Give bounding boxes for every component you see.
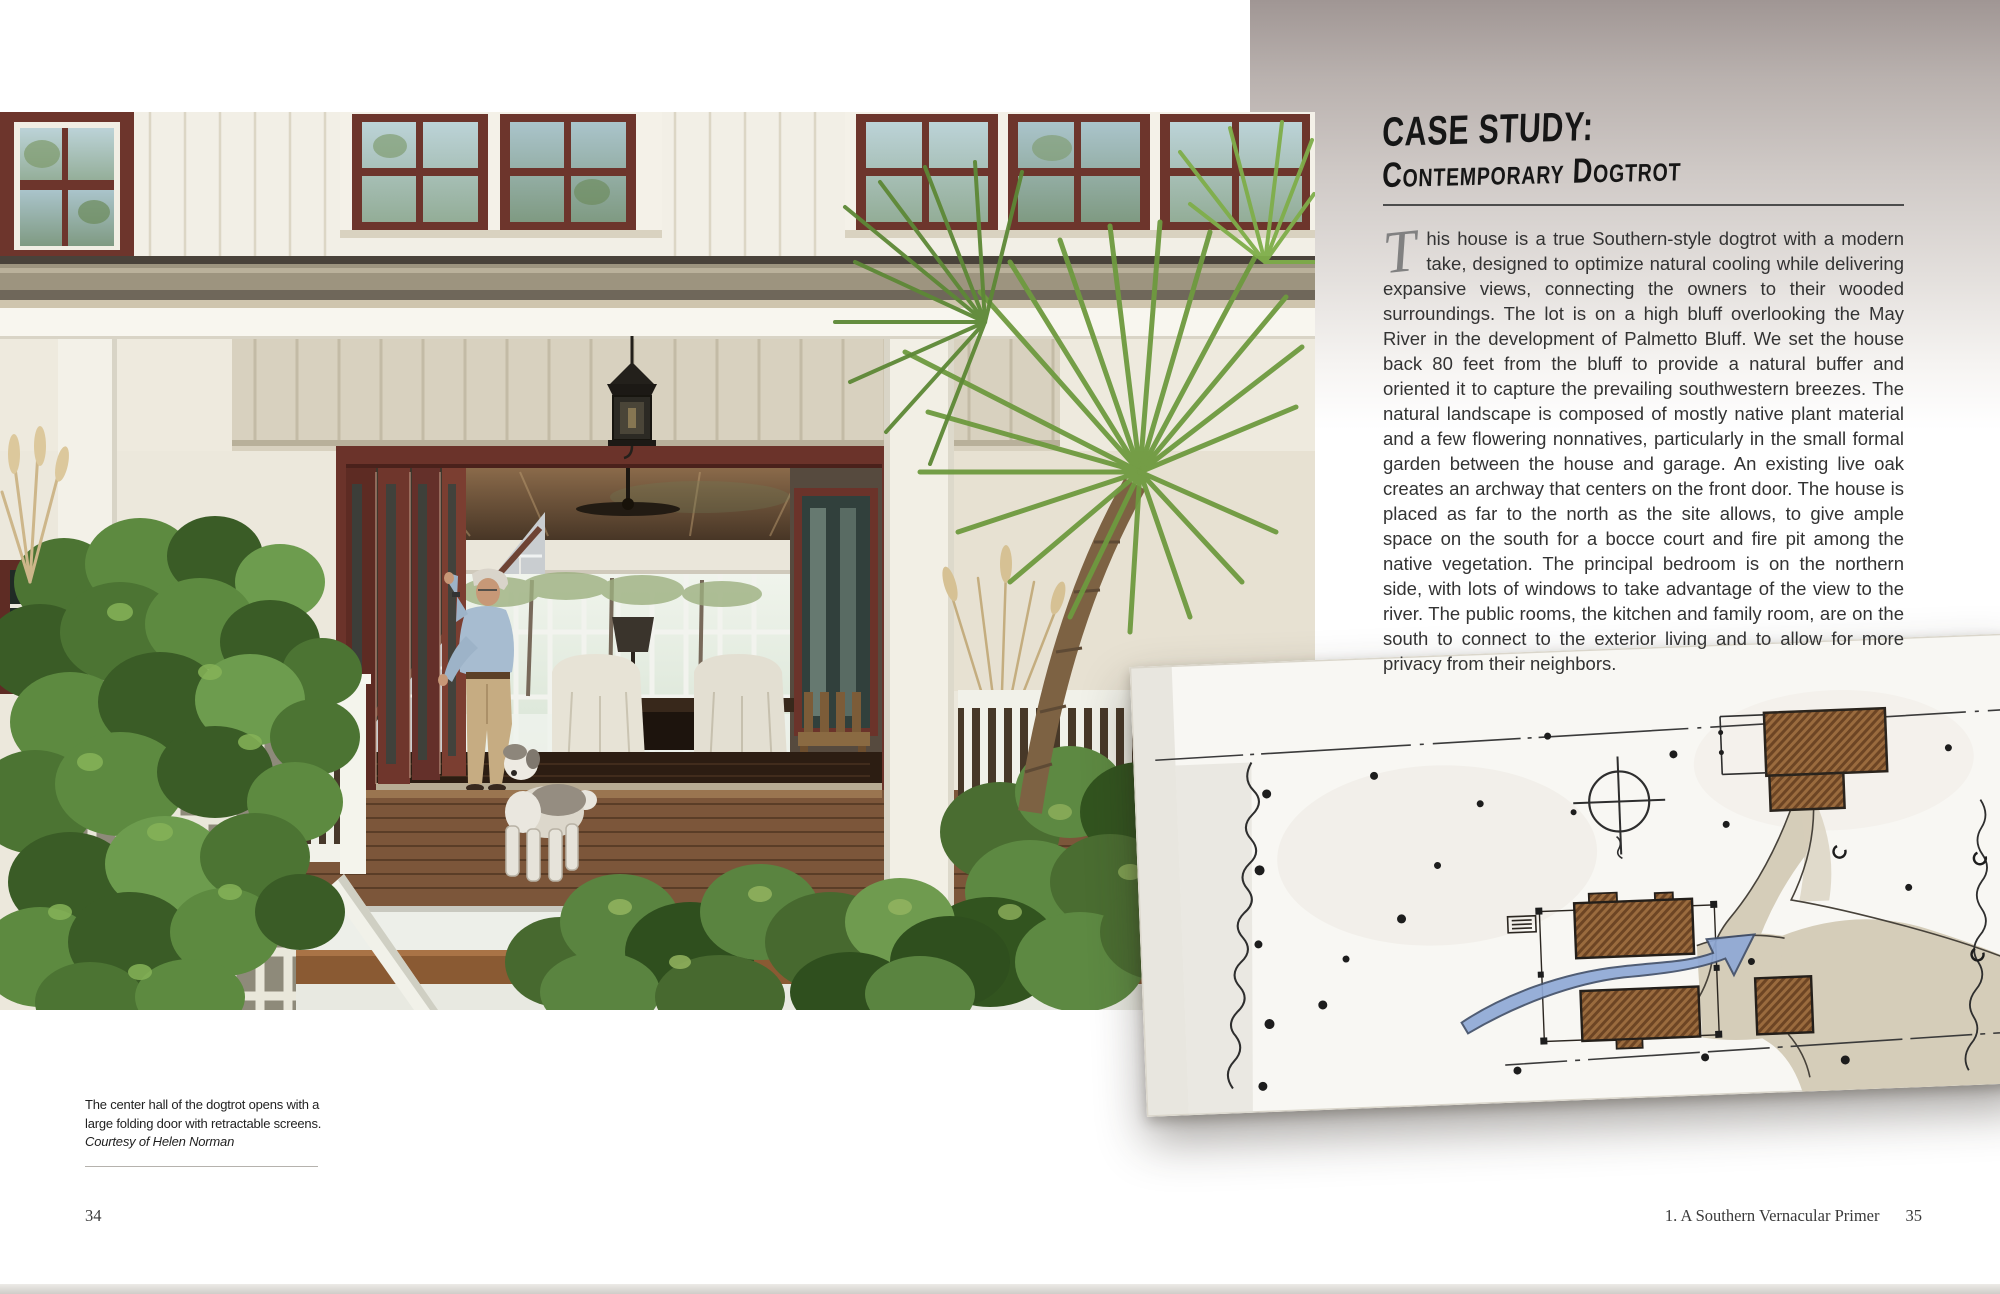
- porch-photo: [0, 112, 1315, 1010]
- caption-credit: Courtesy of Helen Norman: [85, 1134, 234, 1149]
- window-center-pair: [340, 112, 662, 238]
- caption-rule: [85, 1166, 318, 1167]
- window-right-band: [845, 112, 1315, 238]
- porch-fascia: [0, 308, 1315, 451]
- heading-line-2: Contemporary Dogtrot: [1381, 147, 1790, 196]
- case-study-heading: CASE STUDY: Contemporary Dogtrot: [1383, 110, 1905, 196]
- page-bottom-edge: [0, 1284, 2000, 1294]
- photo-caption: The center hall of the dogtrot opens wit…: [85, 1096, 340, 1152]
- outbuilding: [1755, 976, 1813, 1034]
- body-text: his house is a true Southern-style dogtr…: [1383, 228, 1904, 674]
- drop-cap: T: [1381, 224, 1429, 276]
- caption-text: The center hall of the dogtrot opens wit…: [85, 1097, 321, 1131]
- left-trellis-vines: [0, 516, 362, 1010]
- case-study-body: This house is a true Southern-style dogt…: [1383, 226, 1904, 676]
- interior-right-wall: [790, 468, 882, 790]
- porch-photo-illustration: [0, 112, 1315, 1010]
- window-left: [0, 112, 140, 268]
- page-number-left: 34: [85, 1206, 102, 1226]
- site-plan-sketch: [1130, 633, 2000, 1117]
- book-spread: CASE STUDY: Contemporary Dogtrot This ho…: [0, 0, 2000, 1294]
- heading-line-1: CASE STUDY:: [1381, 99, 1769, 154]
- page-number-right: 35: [1906, 1206, 1923, 1225]
- vine-mass: [0, 516, 362, 1010]
- dogtrot-interior: [346, 468, 882, 792]
- heading-rule: [1383, 204, 1904, 206]
- site-plan-drawing: [1130, 633, 2000, 1117]
- chapter-title: 1. A Southern Vernacular Primer: [1665, 1206, 1880, 1225]
- running-footer-right: 1. A Southern Vernacular Primer35: [1665, 1206, 1922, 1226]
- main-house-north-wing: [1574, 890, 1694, 958]
